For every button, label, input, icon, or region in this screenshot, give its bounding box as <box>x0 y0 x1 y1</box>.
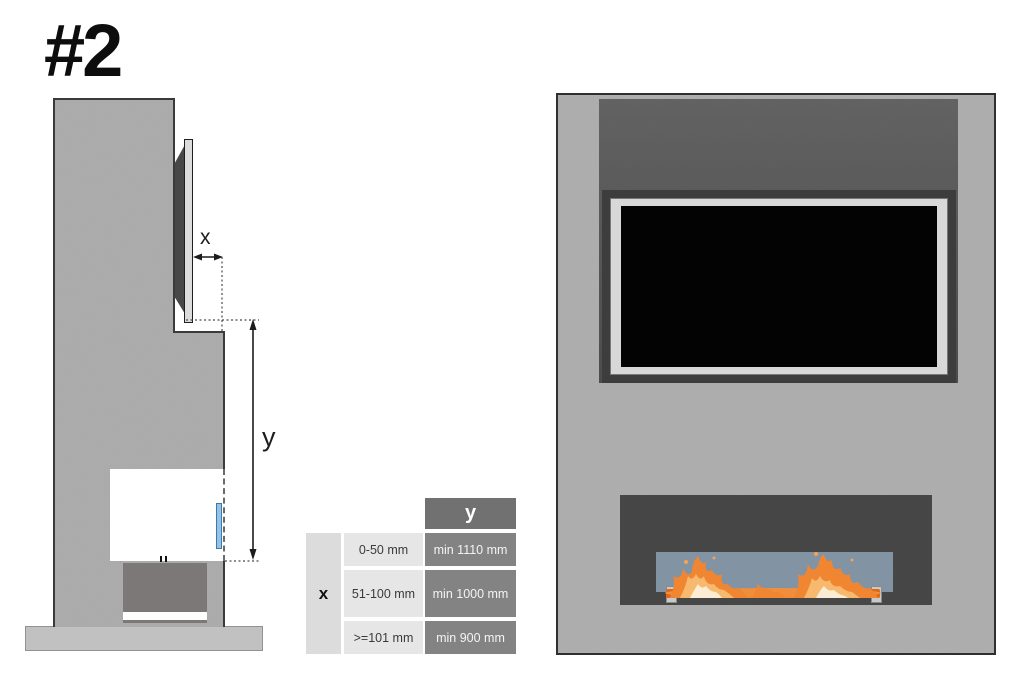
burner-tick-right <box>165 556 167 562</box>
glass-panel-side <box>216 503 222 549</box>
floor-base-side <box>25 626 263 651</box>
burner-tick-left <box>160 556 162 562</box>
diagram-page: #2 x y y x 0-50 mm 51-100 mm >=101 mm <box>0 0 1024 693</box>
table-row-header-x: x <box>306 533 341 654</box>
dimension-x-label: x <box>200 226 211 250</box>
wall-step-edge <box>175 331 225 333</box>
burner-strip <box>123 612 207 620</box>
table-cell-x-range: 0-50 mm <box>344 533 423 566</box>
table-cell-x-range: >=101 mm <box>344 621 423 654</box>
table-cell-x-range: 51-100 mm <box>344 570 423 617</box>
table-cell-y-min: min 1110 mm <box>425 533 516 566</box>
table-cell-y-min: min 1000 mm <box>425 570 516 617</box>
table-col-header-y: y <box>425 498 516 529</box>
tv-side-profile <box>184 139 193 323</box>
tv-screen <box>621 206 937 367</box>
side-wall-upper <box>53 98 175 334</box>
wall-grain <box>55 100 173 334</box>
page-title: #2 <box>44 14 120 88</box>
burner-housing-side <box>123 563 207 623</box>
firebox-opening-side <box>110 469 225 561</box>
dimension-y-label: y <box>262 422 276 453</box>
table-cell-y-min: min 900 mm <box>425 621 516 654</box>
flames <box>656 548 894 602</box>
